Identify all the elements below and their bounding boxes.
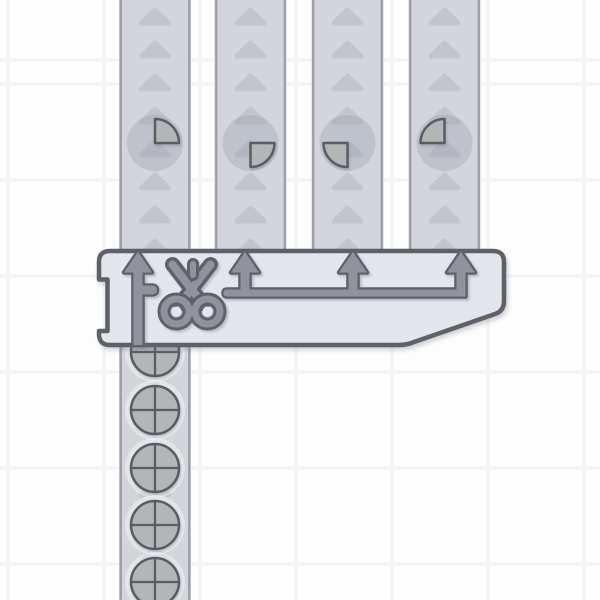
item-quarter-top-right[interactable] bbox=[127, 115, 183, 171]
belt-edge-right bbox=[381, 0, 383, 255]
belt-edge-right bbox=[188, 0, 190, 255]
game-viewport bbox=[0, 0, 600, 600]
belt-edge-right bbox=[478, 0, 480, 255]
item-circle-whole[interactable] bbox=[125, 495, 185, 555]
factory-scene bbox=[0, 0, 600, 600]
belt-edge-left bbox=[409, 0, 411, 255]
item-circle-whole[interactable] bbox=[125, 438, 185, 498]
item-quarter-bottom-left[interactable] bbox=[320, 115, 376, 171]
belt-edge-right bbox=[284, 0, 286, 255]
item-quarter-top-left[interactable] bbox=[417, 115, 473, 171]
belt-edge-left bbox=[215, 0, 217, 255]
belt-edge-right bbox=[188, 337, 190, 600]
belt-edge-left bbox=[312, 0, 314, 255]
belt-edge-left bbox=[120, 337, 122, 600]
item-circle-whole[interactable] bbox=[125, 380, 185, 440]
item-quarter-bottom-right[interactable] bbox=[223, 115, 279, 171]
belt-edge-left bbox=[120, 0, 122, 255]
quad-cutter-machine[interactable] bbox=[99, 251, 504, 345]
